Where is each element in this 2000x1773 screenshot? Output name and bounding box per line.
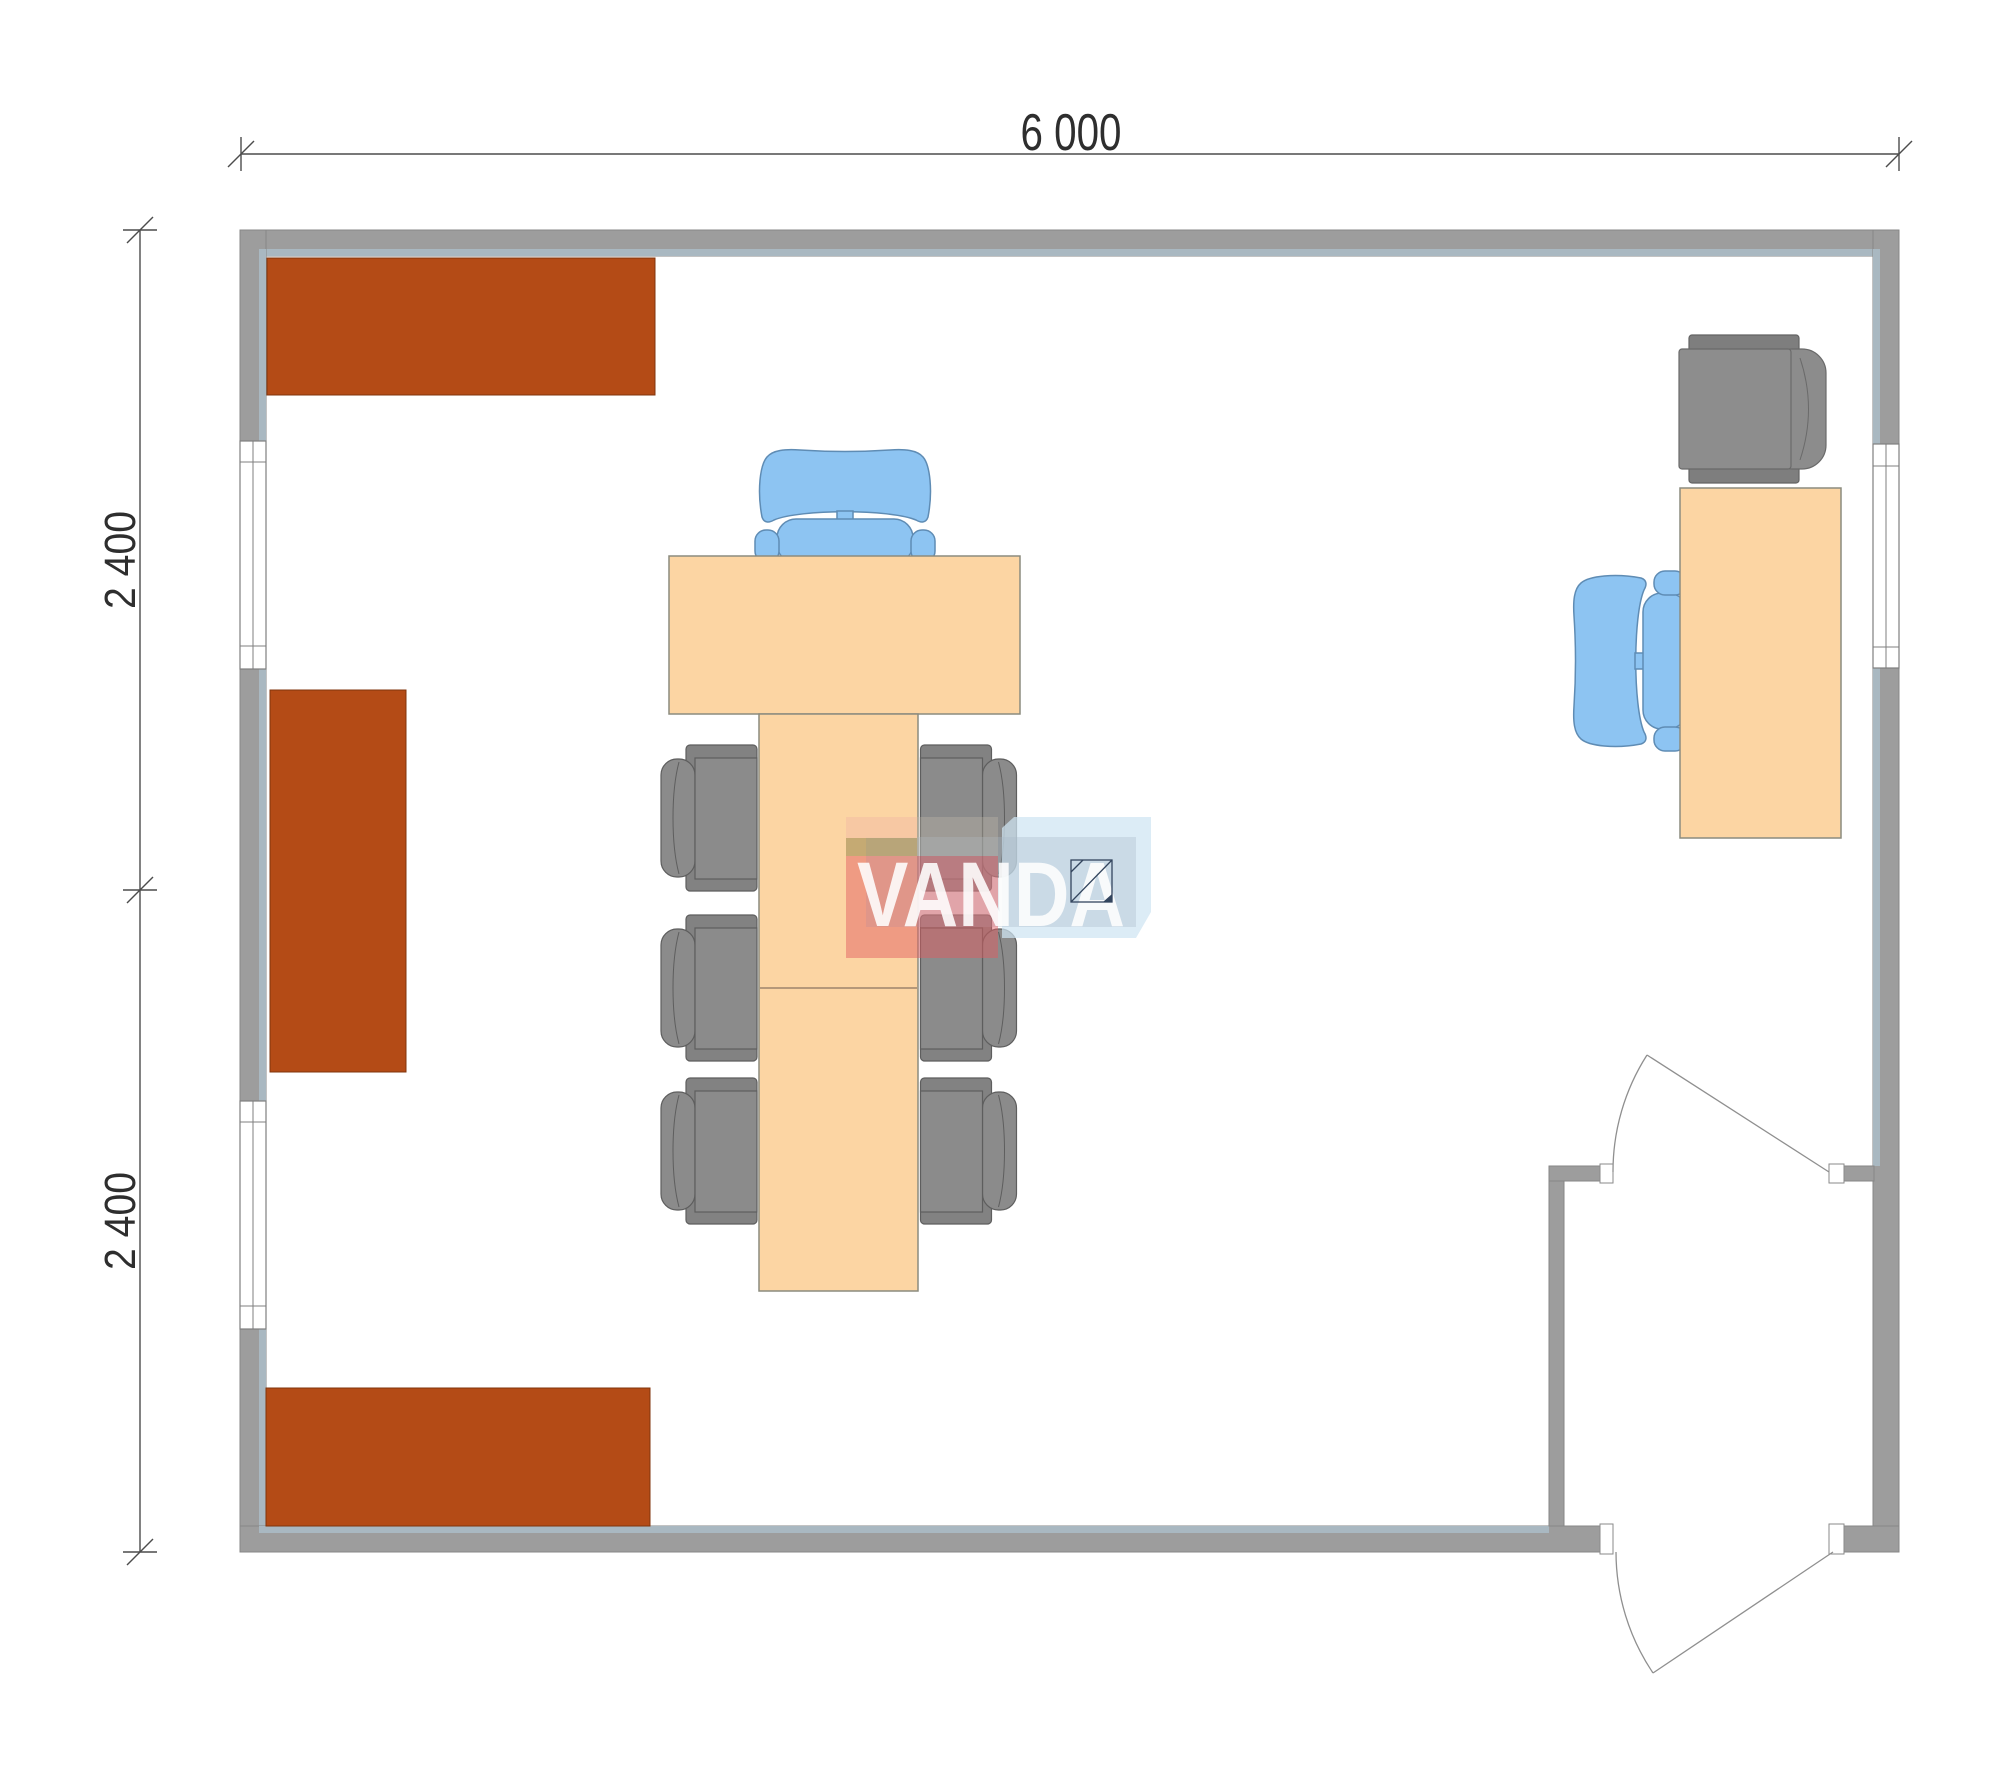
svg-text:6 000: 6 000 [1021,104,1122,162]
svg-text:VANDA: VANDA [857,844,1125,946]
svg-text:2 400: 2 400 [96,1172,145,1270]
svg-text:2 400: 2 400 [96,511,145,609]
